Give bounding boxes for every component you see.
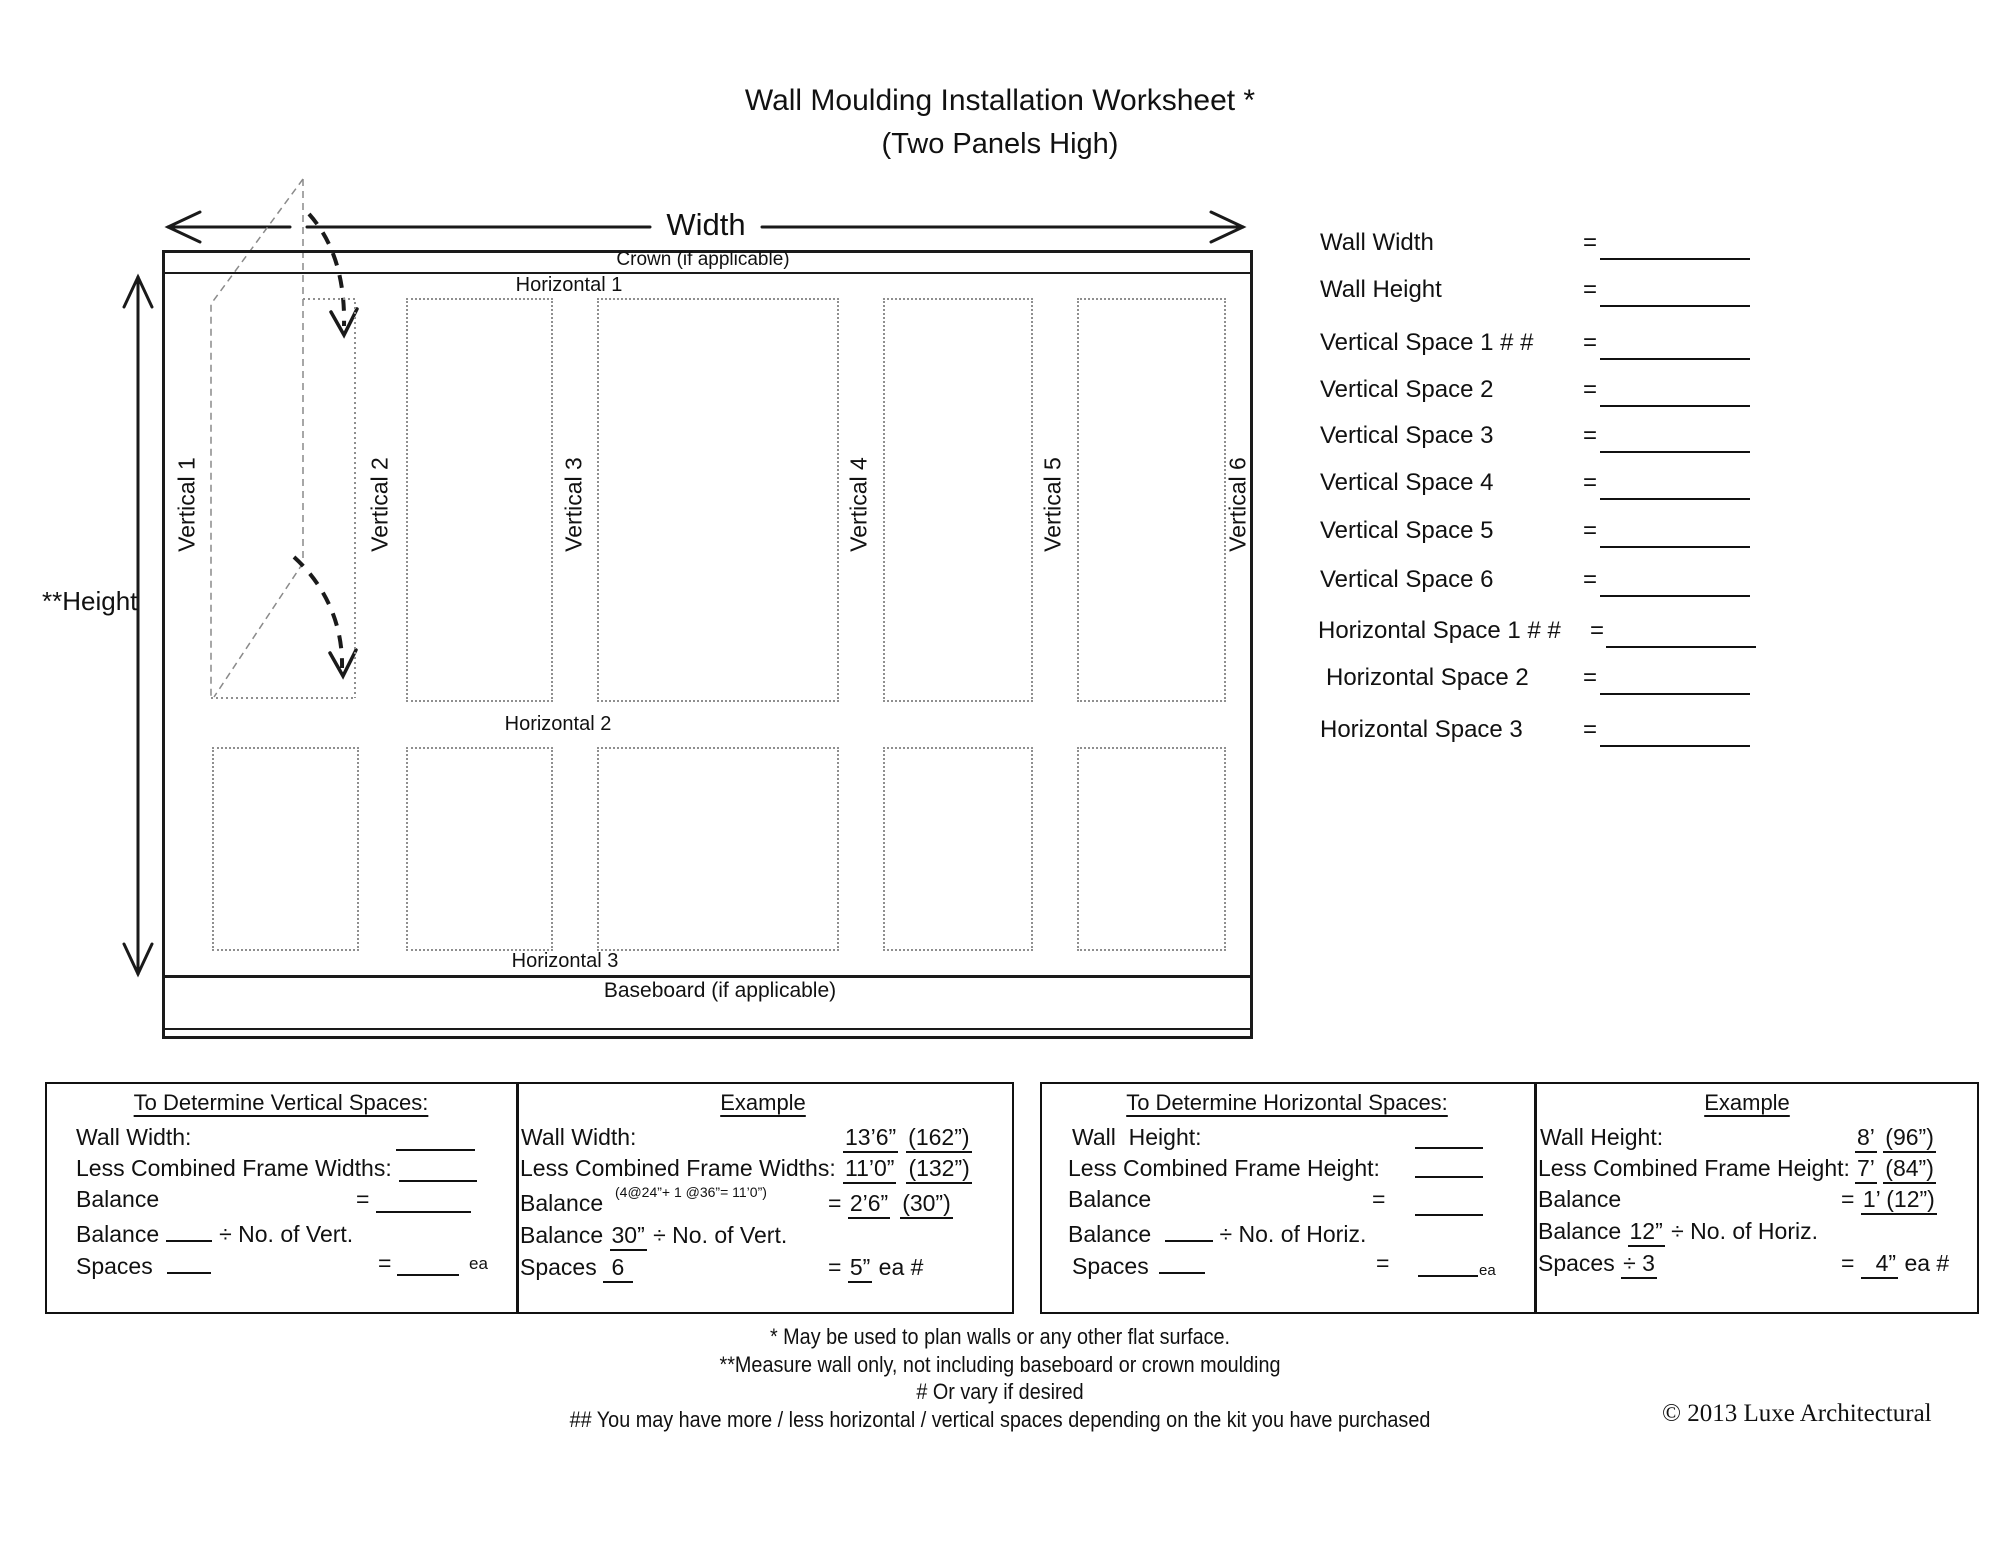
panel-frame-bottom-1 bbox=[212, 747, 359, 951]
vbox-spaces-label: Spaces bbox=[76, 1253, 153, 1279]
vex-wall-width-v2: (162”) bbox=[906, 1124, 971, 1153]
hex-spaces-label: Spaces bbox=[1538, 1250, 1621, 1276]
wall-bottom-inner-line bbox=[165, 1028, 1250, 1030]
hbox-spaces-blank[interactable] bbox=[1159, 1250, 1205, 1274]
hbox-wall-height-line[interactable] bbox=[1415, 1147, 1483, 1149]
vertical-3-label: Vertical 3 bbox=[561, 405, 588, 605]
form-line-vertical-space-4[interactable] bbox=[1600, 498, 1750, 500]
footnote-double-hash: ## You may have more / less horizontal /… bbox=[100, 1407, 1900, 1433]
footnote-hash: # Or vary if desired bbox=[100, 1379, 1900, 1405]
panel-frame-top-4 bbox=[883, 298, 1033, 702]
panel-frame-top-3 bbox=[597, 298, 839, 702]
horizontal-1-label: Horizontal 1 bbox=[516, 274, 623, 297]
vex-wall-width-label: Wall Width: bbox=[521, 1124, 636, 1151]
equals-sign: = bbox=[1583, 229, 1597, 257]
horizontal-example-title: Example bbox=[1597, 1090, 1897, 1116]
hbox-balance-divide-pre: Balance bbox=[1068, 1221, 1158, 1247]
hbox-less-frames-line[interactable] bbox=[1415, 1176, 1483, 1178]
vertical-5-label: Vertical 5 bbox=[1040, 405, 1067, 605]
form-line-vertical-space-6[interactable] bbox=[1600, 595, 1750, 597]
equals-sign: = bbox=[1583, 422, 1597, 450]
equals-sign: = bbox=[1583, 566, 1597, 594]
hbox-balance-label: Balance bbox=[1068, 1186, 1151, 1213]
vbox-spaces-row: Spaces bbox=[76, 1250, 218, 1280]
hex-spaces-result: = 4” ea # bbox=[1841, 1250, 1949, 1277]
vertical-1-label: Vertical 1 bbox=[174, 405, 201, 605]
hex-wall-height-label: Wall Height: bbox=[1540, 1124, 1663, 1151]
crown-label: Crown (if applicable) bbox=[616, 249, 789, 271]
equals-sign: = bbox=[1841, 1250, 1854, 1276]
vertical-6-label: Vertical 6 bbox=[1225, 405, 1252, 605]
equals-sign: = bbox=[378, 1250, 391, 1277]
vertical-example-title: Example bbox=[613, 1090, 913, 1116]
hex-balance-divide-pre: Balance bbox=[1538, 1218, 1628, 1244]
horizontal-3-label: Horizontal 3 bbox=[512, 950, 619, 973]
equals-sign: = bbox=[828, 1254, 841, 1280]
vex-spaces-result: = 5” ea # bbox=[828, 1254, 923, 1281]
vbox-spaces-line[interactable] bbox=[397, 1274, 459, 1276]
form-line-vertical-space-3[interactable] bbox=[1600, 451, 1750, 453]
worksheet-page: Wall Moulding Installation Worksheet * (… bbox=[0, 0, 2000, 1546]
form-label-vertical-space-4: Vertical Space 4 bbox=[1320, 469, 1493, 497]
vex-balance-label: Balance bbox=[520, 1190, 603, 1217]
vex-balance-values: = 2’6”(30”) bbox=[828, 1190, 953, 1217]
hex-wall-height-values: 8’ (96”) bbox=[1855, 1124, 1936, 1151]
vex-spaces-label: Spaces bbox=[520, 1254, 597, 1280]
panel-frame-bottom-5 bbox=[1077, 747, 1226, 951]
equals-sign: = bbox=[1583, 276, 1597, 304]
box-divider bbox=[516, 1084, 519, 1312]
vbox-less-frames-line[interactable] bbox=[399, 1180, 477, 1182]
hex-spaces-each-suffix: ea # bbox=[1898, 1250, 1949, 1276]
vex-wall-width-values: 13’6”(162”) bbox=[843, 1124, 972, 1151]
vex-spaces-each-suffix: ea # bbox=[872, 1254, 923, 1280]
vex-balance-divide-row: Balance 30” ÷ No. of Vert. bbox=[520, 1222, 787, 1249]
form-line-horizontal-space-2[interactable] bbox=[1600, 693, 1750, 695]
vex-spaces-row: Spaces 6 bbox=[520, 1254, 633, 1281]
equals-sign: = bbox=[356, 1186, 369, 1213]
hex-less-frames-v2: (84”) bbox=[1883, 1155, 1936, 1184]
panel-frame-bottom-2 bbox=[406, 747, 553, 951]
vex-balance-divide-pre: Balance bbox=[520, 1222, 603, 1248]
hex-balance-divide-post: ÷ No. of Horiz. bbox=[1665, 1218, 1818, 1244]
hex-spaces-row: Spaces ÷ 3 bbox=[1538, 1250, 1657, 1277]
hbox-balance-divide-post: ÷ No. of Horiz. bbox=[1220, 1221, 1367, 1247]
vbox-balance-blank[interactable] bbox=[166, 1218, 212, 1242]
hex-balance-divide-value: 12” bbox=[1628, 1218, 1665, 1247]
vex-wall-width-v1: 13’6” bbox=[843, 1124, 898, 1153]
form-line-horizontal-space-1[interactable] bbox=[1606, 646, 1756, 648]
vbox-balance-divide-row: Balance÷ No. of Vert. bbox=[76, 1218, 353, 1248]
form-label-vertical-space-3: Vertical Space 3 bbox=[1320, 422, 1493, 450]
vbox-wall-width-label: Wall Width: bbox=[76, 1124, 191, 1151]
vex-spaces-value: 6 bbox=[603, 1254, 633, 1283]
width-label: Width bbox=[666, 207, 745, 243]
vbox-spaces-blank[interactable] bbox=[167, 1250, 211, 1274]
form-label-vertical-space-5: Vertical Space 5 bbox=[1320, 517, 1493, 545]
form-label-horizontal-space-1: Horizontal Space 1 # # bbox=[1318, 617, 1561, 645]
vex-less-frames-label: Less Combined Frame Widths: bbox=[520, 1155, 836, 1182]
form-line-horizontal-space-3[interactable] bbox=[1600, 745, 1750, 747]
box-divider bbox=[1534, 1084, 1537, 1312]
hbox-spaces-label: Spaces bbox=[1072, 1253, 1149, 1279]
panel-frame-bottom-4 bbox=[883, 747, 1033, 951]
hex-wall-height-v1: 8’ bbox=[1855, 1124, 1877, 1153]
equals-sign: = bbox=[1583, 469, 1597, 497]
hex-balance-value: 1’ (12”) bbox=[1861, 1186, 1937, 1215]
vbox-ea-label: ea bbox=[469, 1254, 488, 1274]
equals-sign: = bbox=[1583, 517, 1597, 545]
vertical-4-label: Vertical 4 bbox=[846, 405, 873, 605]
vbox-less-frames-label: Less Combined Frame Widths: bbox=[76, 1155, 392, 1182]
equals-sign: = bbox=[1841, 1186, 1854, 1212]
crown-bottom-line bbox=[162, 272, 1253, 274]
hex-balance-label: Balance bbox=[1538, 1186, 1621, 1213]
form-line-vertical-space-2[interactable] bbox=[1600, 405, 1750, 407]
height-label: **Height bbox=[42, 586, 137, 617]
vex-less-frames-values: 11’0”(132”) bbox=[843, 1155, 972, 1182]
copyright-notice: © 2013 Luxe Architectural bbox=[1662, 1400, 1932, 1428]
equals-sign: = bbox=[1583, 376, 1597, 404]
hex-spaces-value: ÷ 3 bbox=[1621, 1250, 1657, 1279]
vertical-2-label: Vertical 2 bbox=[367, 405, 394, 605]
form-line-vertical-space-1[interactable] bbox=[1600, 358, 1750, 360]
form-label-wall-height: Wall Height bbox=[1320, 276, 1442, 304]
equals-sign: = bbox=[1583, 329, 1597, 357]
vex-less-frames-v2: (132”) bbox=[906, 1155, 971, 1184]
equals-sign: = bbox=[1583, 716, 1597, 744]
hbox-wall-height-label: Wall Height: bbox=[1072, 1124, 1202, 1151]
form-label-horizontal-space-3: Horizontal Space 3 bbox=[1320, 716, 1523, 744]
equals-sign: = bbox=[1590, 617, 1604, 645]
form-line-wall-height[interactable] bbox=[1600, 305, 1750, 307]
form-label-wall-width: Wall Width bbox=[1320, 229, 1434, 257]
form-line-vertical-space-5[interactable] bbox=[1600, 546, 1750, 548]
equals-sign: = bbox=[828, 1190, 841, 1216]
hex-balance-values: = 1’ (12”) bbox=[1841, 1186, 1937, 1213]
hbox-spaces-row: Spaces bbox=[1072, 1250, 1212, 1280]
equals-sign: = bbox=[1583, 664, 1597, 692]
hex-balance-divide-row: Balance 12” ÷ No. of Horiz. bbox=[1538, 1218, 1818, 1245]
hbox-spaces-line[interactable] bbox=[1418, 1275, 1478, 1277]
form-label-vertical-space-6: Vertical Space 6 bbox=[1320, 566, 1493, 594]
panel-frame-bottom-3 bbox=[597, 747, 839, 951]
hbox-ea-label: ea bbox=[1479, 1262, 1496, 1279]
panel-frame-top-5 bbox=[1077, 298, 1226, 702]
vbox-wall-width-line[interactable] bbox=[396, 1149, 475, 1151]
vbox-balance-label: Balance bbox=[76, 1186, 159, 1213]
equals-sign: = bbox=[1376, 1250, 1389, 1277]
equals-sign: = bbox=[1372, 1186, 1385, 1213]
vex-less-frames-v1: 11’0” bbox=[843, 1155, 896, 1184]
vbox-balance-divide-post: ÷ No. of Vert. bbox=[219, 1221, 353, 1247]
form-label-horizontal-space-2: Horizontal Space 2 bbox=[1326, 664, 1529, 692]
hbox-balance-line[interactable] bbox=[1415, 1214, 1483, 1216]
hex-less-frames-v1: 7’ bbox=[1855, 1155, 1877, 1184]
hex-spaces-each-value: 4” bbox=[1861, 1250, 1898, 1279]
vbox-balance-line[interactable] bbox=[376, 1211, 471, 1213]
hex-less-frames-values: 7’ (84”) bbox=[1855, 1155, 1936, 1182]
vex-balance-divide-post: ÷ No. of Vert. bbox=[647, 1222, 787, 1248]
baseboard-label: Baseboard (if applicable) bbox=[604, 979, 836, 1003]
vertical-box-title: To Determine Vertical Spaces: bbox=[120, 1090, 442, 1116]
vex-balance-v2: (30”) bbox=[900, 1190, 953, 1219]
form-label-vertical-space-1: Vertical Space 1 # # bbox=[1320, 329, 1533, 357]
vex-balance-divide-value: 30” bbox=[610, 1222, 647, 1251]
vex-balance-v1: 2’6” bbox=[848, 1190, 890, 1219]
horizontal-2-label: Horizontal 2 bbox=[505, 713, 612, 736]
form-label-vertical-space-2: Vertical Space 2 bbox=[1320, 376, 1493, 404]
hbox-less-frames-label: Less Combined Frame Height: bbox=[1068, 1155, 1380, 1182]
panel-frame-top-2 bbox=[406, 298, 553, 702]
footnote-asterisk: * May be used to plan walls or any other… bbox=[100, 1324, 1900, 1350]
footnote-double-asterisk: **Measure wall only, not including baseb… bbox=[100, 1352, 1900, 1378]
hex-less-frames-label: Less Combined Frame Height: bbox=[1538, 1155, 1850, 1182]
horizontal-box-title: To Determine Horizontal Spaces: bbox=[1097, 1090, 1477, 1116]
vex-spaces-each-value: 5” bbox=[848, 1254, 872, 1283]
hex-wall-height-v2: (96”) bbox=[1883, 1124, 1936, 1153]
baseboard-top-line bbox=[162, 975, 1253, 978]
form-line-wall-width[interactable] bbox=[1600, 258, 1750, 260]
hbox-balance-blank[interactable] bbox=[1165, 1218, 1213, 1242]
vbox-balance-divide-pre: Balance bbox=[76, 1221, 159, 1247]
hbox-balance-divide-row: Balance ÷ No. of Horiz. bbox=[1068, 1218, 1366, 1248]
vex-frame-note: (4@24”+ 1 @36”= 11’0”) bbox=[615, 1184, 767, 1200]
